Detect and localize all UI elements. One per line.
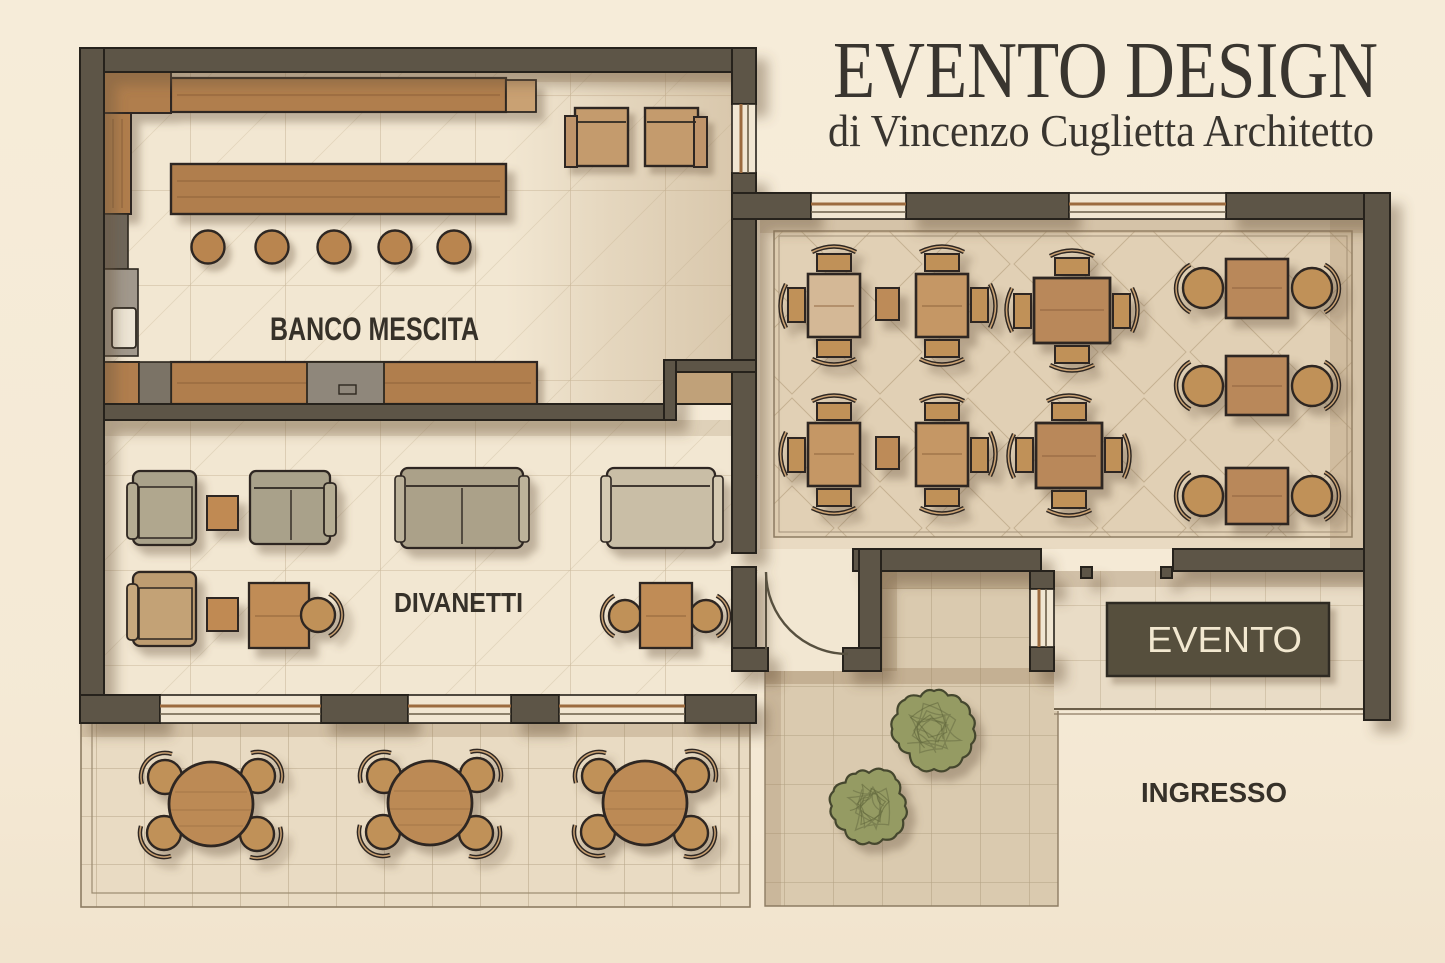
svg-text:EVENTO: EVENTO	[1147, 619, 1302, 660]
svg-text:DIVANETTI: DIVANETTI	[394, 587, 523, 618]
svg-text:BANCO MESCITA: BANCO MESCITA	[270, 311, 479, 347]
svg-text:EVENTO DESIGN: EVENTO DESIGN	[833, 27, 1378, 115]
svg-text:INGRESSO: INGRESSO	[1141, 777, 1287, 808]
svg-text:di Vincenzo Cuglietta Architet: di Vincenzo Cuglietta Architetto	[828, 105, 1374, 156]
